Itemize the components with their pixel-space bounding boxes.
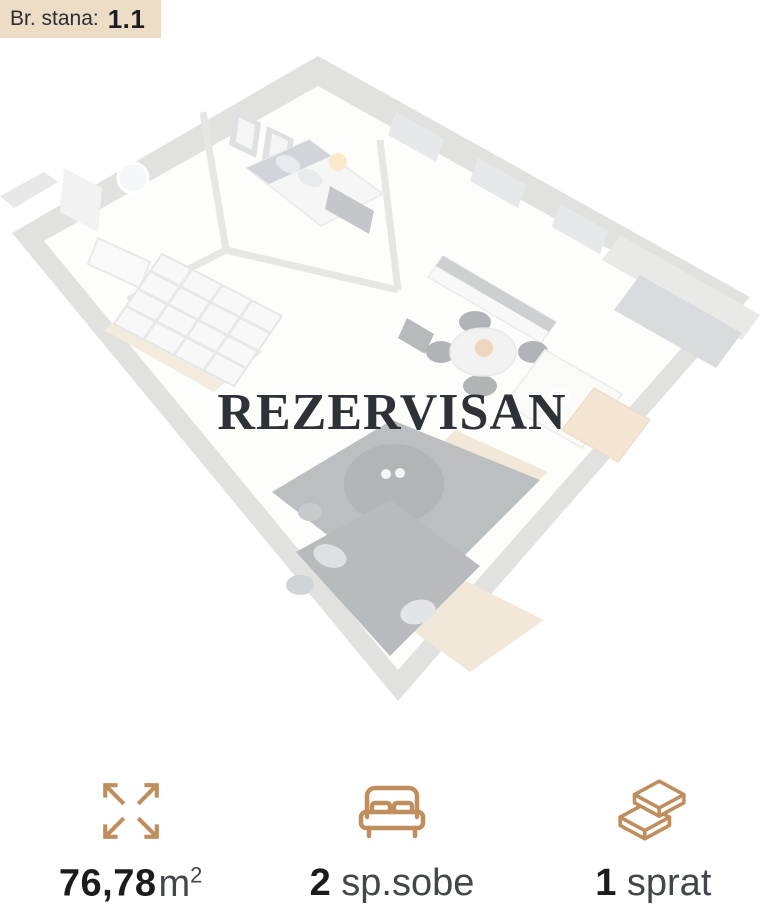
- floor-label: 1sprat: [595, 864, 711, 902]
- sink: [88, 238, 150, 288]
- bed: [247, 140, 383, 226]
- expand-arrows-icon: [98, 770, 164, 852]
- stat-bedrooms: 2sp.sobe: [261, 770, 522, 903]
- badge-value: 1.1: [108, 4, 146, 35]
- sofa: [296, 500, 480, 656]
- floor-value: 1: [595, 862, 617, 904]
- outer-walls: [12, 56, 750, 701]
- bedrooms-unit: sp.sobe: [341, 862, 474, 904]
- apartment-card: REZERVISAN Br. stana: 1.1 76,78m2: [0, 0, 784, 920]
- stat-area: 76,78m2: [0, 770, 261, 903]
- floor-unit: sprat: [627, 862, 711, 904]
- floor: [44, 86, 716, 670]
- coffee-table: [344, 444, 444, 524]
- area-unit-sup: 2: [190, 862, 202, 887]
- bedrooms-value: 2: [310, 862, 332, 904]
- stat-floor: 1sprat: [523, 770, 784, 903]
- kitchen: [398, 256, 556, 354]
- area-unit: m: [159, 863, 191, 905]
- mirror: [118, 163, 148, 193]
- layers-icon: [616, 770, 690, 852]
- reserved-watermark: REZERVISAN: [0, 383, 784, 442]
- bedrooms-label: 2sp.sobe: [310, 864, 475, 902]
- living-room: [272, 420, 540, 656]
- badge-label: Br. stana:: [10, 7, 99, 31]
- wardrobe: [114, 254, 282, 386]
- area-value: 76,78: [59, 863, 157, 905]
- bed-icon: [353, 770, 431, 852]
- tv: [325, 186, 374, 234]
- area-label: 76,78m2: [59, 864, 203, 903]
- bathroom: [60, 163, 150, 288]
- stats-row: 76,78m2 2sp.sobe: [0, 770, 784, 903]
- rug: [272, 420, 540, 604]
- apartment-number-badge: Br. stana: 1.1: [0, 0, 161, 38]
